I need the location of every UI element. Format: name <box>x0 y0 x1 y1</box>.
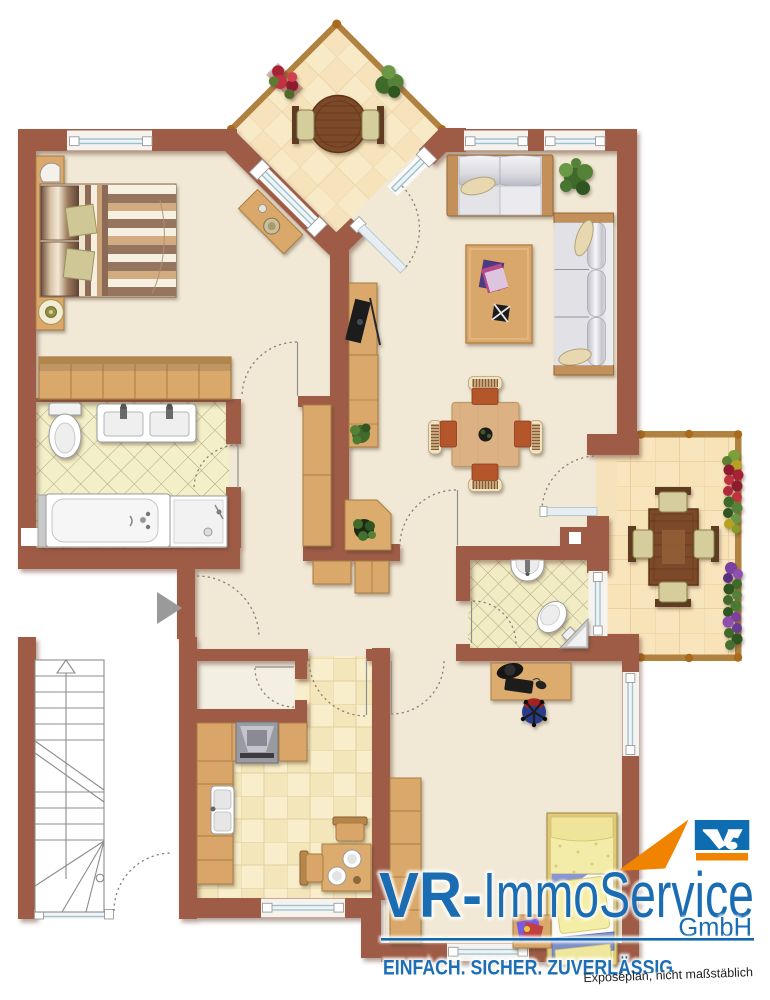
svg-text:VR-: VR- <box>379 859 482 931</box>
